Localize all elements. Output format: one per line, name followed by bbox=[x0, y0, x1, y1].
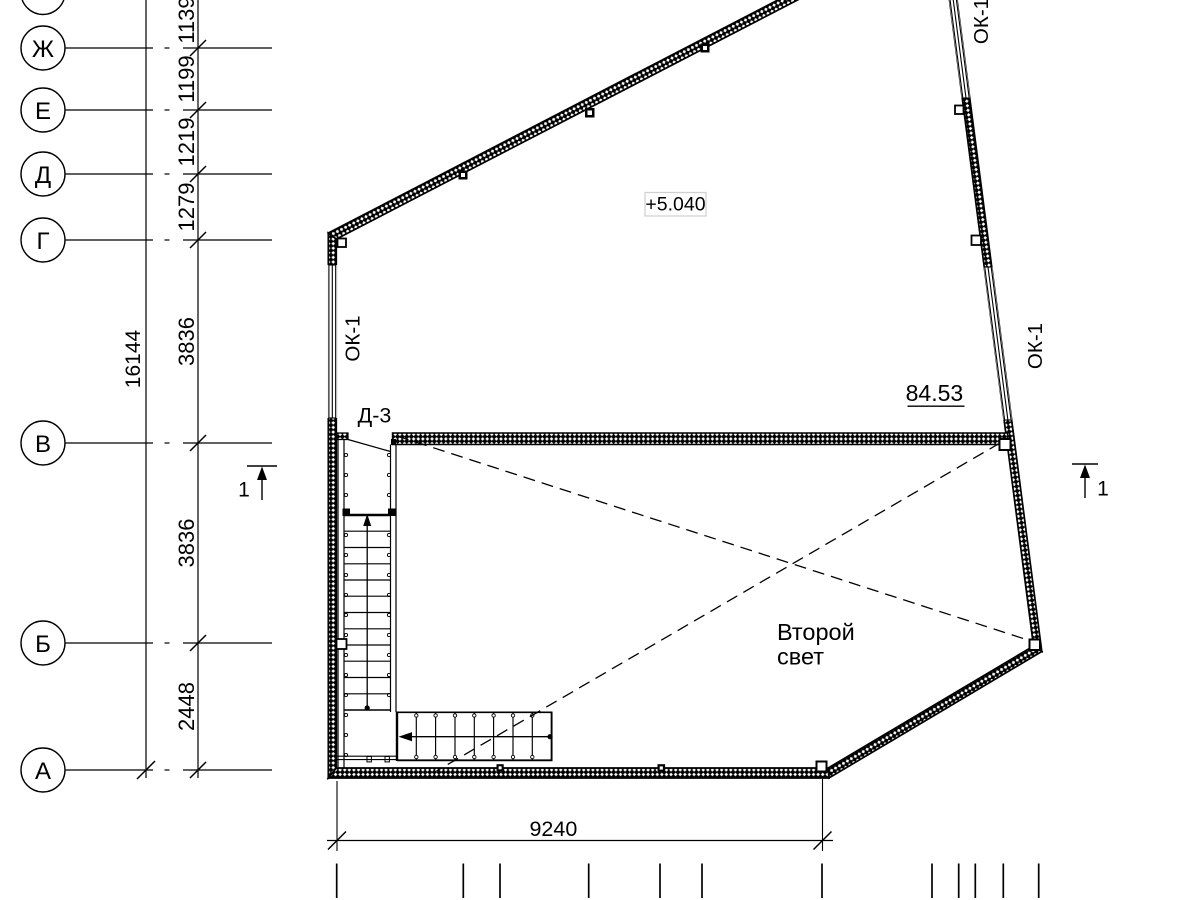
svg-text:ОК-1: ОК-1 bbox=[342, 315, 365, 361]
svg-text:2448: 2448 bbox=[174, 682, 199, 731]
svg-text:1199: 1199 bbox=[174, 55, 199, 102]
svg-text:9240: 9240 bbox=[529, 817, 577, 841]
svg-text:ОК-1: ОК-1 bbox=[970, 0, 993, 44]
svg-text:1: 1 bbox=[1097, 478, 1109, 501]
svg-text:1279: 1279 bbox=[174, 183, 199, 232]
svg-text:свет: свет bbox=[777, 644, 824, 670]
svg-text:84.53: 84.53 bbox=[906, 380, 964, 406]
svg-text:Второй: Второй bbox=[777, 619, 855, 645]
svg-text:3836: 3836 bbox=[174, 519, 199, 568]
svg-text:Г: Г bbox=[37, 228, 50, 255]
svg-text:Е: Е bbox=[35, 98, 51, 125]
svg-text:+5.040: +5.040 bbox=[645, 194, 705, 216]
svg-text:16144: 16144 bbox=[122, 329, 145, 388]
svg-text:3836: 3836 bbox=[174, 317, 199, 366]
svg-text:1219: 1219 bbox=[174, 118, 199, 167]
svg-text:ОК-1: ОК-1 bbox=[1024, 323, 1047, 369]
svg-text:Д: Д bbox=[35, 162, 51, 189]
svg-text:1139: 1139 bbox=[174, 0, 199, 44]
svg-text:1: 1 bbox=[238, 479, 250, 502]
svg-text:А: А bbox=[35, 758, 51, 785]
svg-text:Д-3: Д-3 bbox=[358, 404, 392, 428]
svg-text:В: В bbox=[35, 431, 51, 458]
svg-text:Б: Б bbox=[35, 631, 51, 658]
svg-text:Ж: Ж bbox=[32, 36, 54, 63]
